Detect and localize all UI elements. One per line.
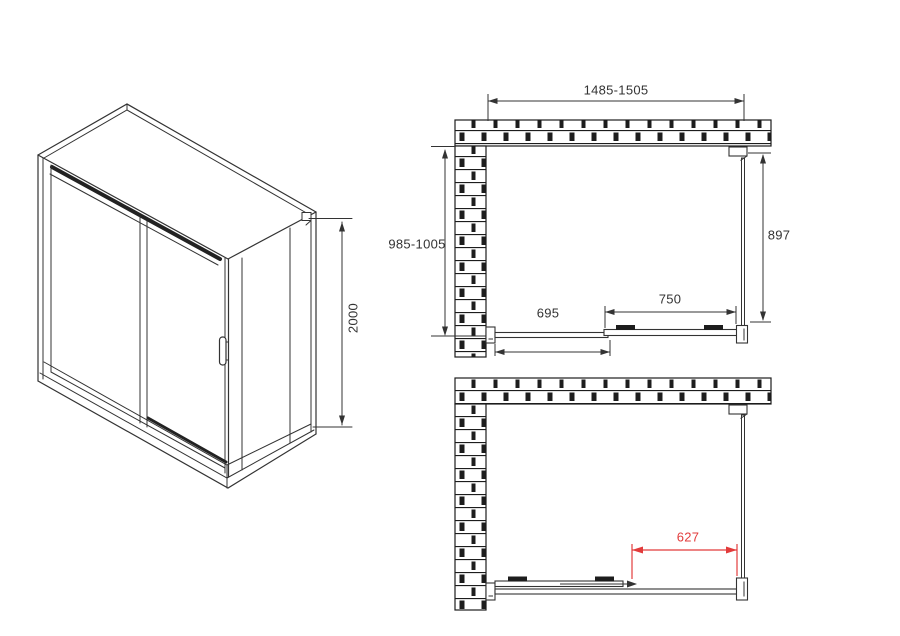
dim-label-depth: 985-1005 [388,237,445,252]
sliding-door [604,330,738,336]
dimension-fixed-panel [495,340,610,356]
dim-label-height: 2000 [346,303,361,333]
dim-label-opening: 627 [677,530,700,545]
dim-label-width: 1485-1505 [584,83,649,98]
side-panel [742,415,745,578]
wall-profile [486,327,495,343]
perspective-view [38,104,352,488]
drawing-canvas: 1485-1505 985-1005 897 750 695 2000 627 [0,0,900,636]
brick-wall-top [455,378,771,404]
brick-wall-left [455,404,486,610]
top-rim-outer-back [38,104,316,212]
roller [595,577,614,582]
plan-view-open [455,378,771,610]
dimension-width [488,94,744,121]
technical-drawing [0,0,900,636]
glass-bottom-edge [51,372,225,468]
tray-rim-inner [44,362,311,465]
fixed-panel [495,333,608,338]
plan-view-closed [431,94,771,357]
dim-label-door: 750 [659,292,682,307]
wall-profile [729,147,747,156]
door-handle [220,337,229,365]
roller [508,577,527,582]
side-panel [742,158,745,328]
roller [616,325,635,330]
wall-bracket [302,213,311,221]
brick-wall-left [455,146,486,357]
door-top-rail [52,167,220,259]
dimension-door [605,306,736,328]
wall-profile [729,405,747,414]
bottom-rail [495,589,742,594]
brick-wall-top [455,120,771,146]
wall-profile [486,583,495,600]
dim-label-fixed-panel: 695 [537,306,560,321]
top-rim-inner-back [44,110,310,215]
dim-label-side-panel: 897 [768,228,791,243]
roller [704,325,723,330]
door-end-profile [737,578,748,600]
door-end-profile [737,326,748,344]
top-rim-front [38,155,316,259]
dimension-opening [632,544,737,579]
